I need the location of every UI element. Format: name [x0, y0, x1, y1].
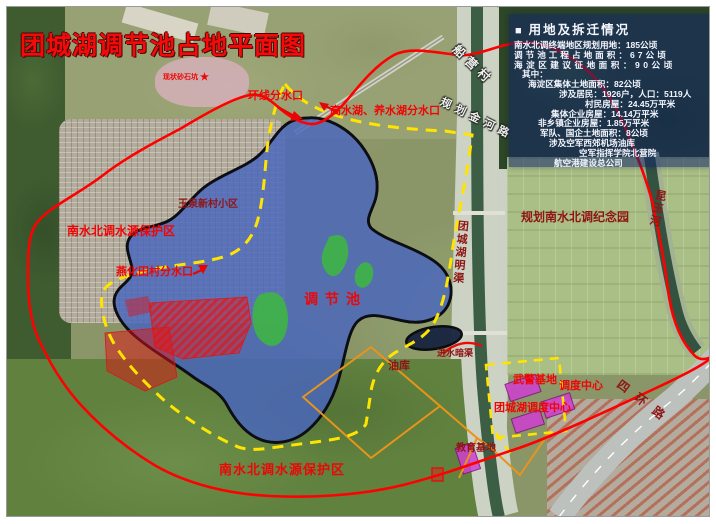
square-bullet-icon: ■	[515, 25, 524, 37]
demolition-area	[105, 327, 177, 391]
label-education-base: 教育基地	[456, 444, 496, 454]
legend-header: ■用地及拆迁情况	[509, 17, 710, 41]
label-gaoshui-yangshui-outlet: 高水湖、养水湖分水口	[330, 106, 440, 117]
label-existing-sand-pit: 现状砂石坑★	[163, 73, 209, 83]
label-water-source-protection-south: 南水北调水源保护区	[219, 463, 345, 476]
plan-map-screenshot: 环线分水口 高水湖、养水湖分水口 玉泉新村小区 南水北调水源保护区 燕化田村分水…	[0, 0, 716, 524]
pool-hatch	[114, 118, 451, 443]
label-inlet-culvert: 进水暗渠	[437, 349, 473, 358]
label-yanhua-tiancun-outlet: 燕化田村分水口	[116, 267, 193, 278]
label-memorial-park: 规划南水北调纪念园	[521, 211, 629, 223]
star-icon: ★	[200, 72, 209, 83]
map-canvas: 环线分水口 高水湖、养水湖分水口 玉泉新村小区 南水北调水源保护区 燕化田村分水…	[6, 6, 710, 517]
page-title: 团城湖调节池占地平面图	[20, 26, 306, 62]
label-yuquan-residential: 玉泉新村小区	[178, 200, 238, 210]
label-oil-depot: 油库	[388, 361, 410, 372]
label-armed-police-base: 武警基地	[513, 375, 557, 386]
label-water-source-protection-north: 南水北调水源保护区	[67, 225, 175, 237]
label-tuanchenghu-dispatch-center: 团城湖调度中心	[494, 403, 571, 414]
legend-line-airport-company: 航空港建设总公司	[509, 159, 710, 169]
sand-pit-label-text: 现状砂石坑	[163, 74, 198, 81]
legend-title: 用地及拆迁情况	[529, 23, 631, 37]
label-ring-diversion-outlet: 环线分水口	[248, 91, 303, 102]
legend-panel: ■用地及拆迁情况 南水北调终端地区规划用地：185公顷 调节池工程占地面积：67…	[509, 14, 710, 167]
label-dispatch-center: 调度中心	[559, 381, 603, 392]
label-regulation-pool: 调节池	[304, 292, 367, 306]
